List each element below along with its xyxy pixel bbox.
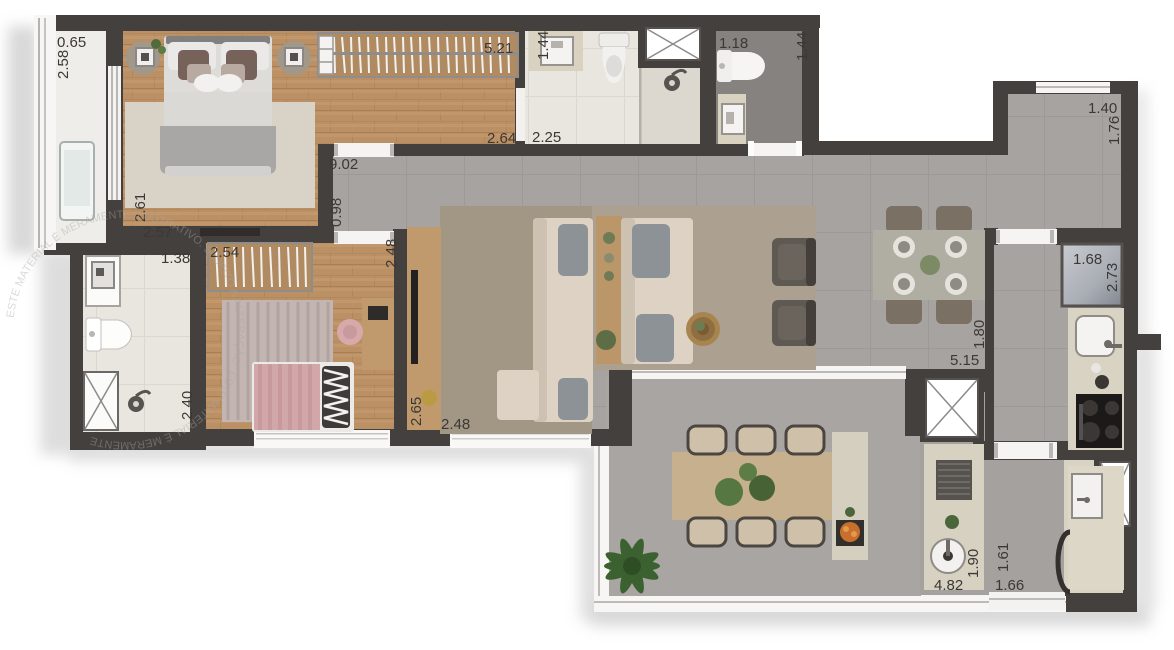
svg-text:9.02: 9.02 bbox=[329, 156, 358, 173]
svg-text:2.25: 2.25 bbox=[532, 129, 561, 146]
svg-text:5.15: 5.15 bbox=[950, 352, 979, 369]
svg-text:2.58: 2.58 bbox=[55, 50, 72, 79]
svg-text:4.82: 4.82 bbox=[934, 577, 963, 594]
svg-text:1.61: 1.61 bbox=[995, 543, 1012, 572]
svg-text:2.48: 2.48 bbox=[441, 416, 470, 433]
svg-text:1.66: 1.66 bbox=[995, 577, 1024, 594]
svg-text:1.90: 1.90 bbox=[965, 549, 982, 578]
svg-text:1.44: 1.44 bbox=[794, 32, 811, 61]
svg-text:1.18: 1.18 bbox=[719, 35, 748, 52]
svg-text:1.76: 1.76 bbox=[1106, 116, 1123, 145]
svg-text:0.65: 0.65 bbox=[57, 34, 86, 51]
svg-text:2.48: 2.48 bbox=[383, 239, 400, 268]
svg-text:2.64: 2.64 bbox=[487, 130, 516, 147]
svg-text:2.73: 2.73 bbox=[1104, 263, 1121, 292]
svg-text:1.44: 1.44 bbox=[535, 31, 552, 60]
svg-text:0.98: 0.98 bbox=[328, 198, 345, 227]
svg-text:1.68: 1.68 bbox=[1073, 251, 1102, 268]
svg-text:2.65: 2.65 bbox=[408, 397, 425, 426]
svg-text:5.21: 5.21 bbox=[484, 40, 513, 57]
svg-text:1.80: 1.80 bbox=[971, 320, 988, 349]
svg-text:1.40: 1.40 bbox=[1088, 100, 1117, 117]
svg-text:1.38: 1.38 bbox=[161, 250, 190, 267]
